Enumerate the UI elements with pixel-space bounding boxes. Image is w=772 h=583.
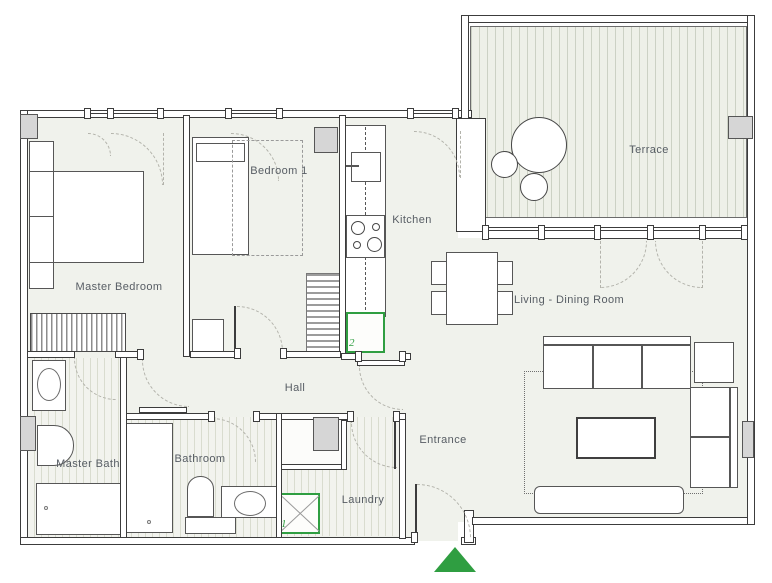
- room-label-terrace: Terrace: [629, 144, 668, 156]
- sofa-cushion-divider: [641, 345, 643, 388]
- window-post: [594, 225, 601, 240]
- burner-icon: [367, 237, 382, 252]
- window-leaf: [163, 133, 164, 185]
- shower-tray: [126, 423, 173, 533]
- sofa-cushion-divider: [691, 436, 729, 438]
- planter-icon: [520, 173, 548, 201]
- wall: [120, 357, 127, 538]
- sofa-two-seat: [690, 387, 738, 488]
- door-leaf: [394, 422, 396, 469]
- sofa-cushion-divider: [592, 345, 594, 388]
- nightstand: [29, 262, 54, 289]
- window-post: [157, 108, 164, 119]
- window-post: [482, 225, 489, 240]
- room-label-master-bath: Master Bath: [56, 458, 120, 470]
- room-label-bathroom: Bathroom: [175, 453, 226, 465]
- wall: [461, 15, 469, 119]
- room-label-kitchen: Kitchen: [392, 214, 432, 226]
- terrace-door-leaf: [600, 241, 601, 288]
- floor-plan: Master Bedroom Bedroom 1 Kitchen Terrace…: [0, 0, 772, 583]
- planter-icon: [511, 117, 567, 173]
- washbasin-icon: [37, 368, 61, 401]
- sliding-door-leaf: [357, 360, 405, 366]
- window-post: [276, 108, 283, 119]
- door-leaf: [460, 131, 461, 178]
- drain-icon: [147, 520, 151, 524]
- dining-table: [446, 252, 498, 325]
- wardrobe: [30, 313, 126, 352]
- nightstand: [29, 141, 54, 172]
- wall: [190, 351, 238, 358]
- column: [20, 114, 38, 139]
- drain-icon: [44, 506, 48, 510]
- wall: [339, 115, 346, 357]
- window-post: [538, 225, 545, 240]
- wall: [281, 464, 342, 470]
- bedside-unit: [29, 216, 54, 263]
- side-table: [694, 342, 734, 383]
- tv-cabinet: [534, 486, 684, 514]
- wall: [341, 420, 347, 470]
- door-jamb: [280, 348, 287, 359]
- room-label-hall: Hall: [285, 382, 306, 394]
- wall: [183, 115, 190, 357]
- dining-chair: [431, 291, 447, 315]
- window-post: [647, 225, 654, 240]
- wall: [20, 110, 28, 545]
- appliance-2-marker: 2: [349, 337, 355, 349]
- door-jamb: [355, 351, 362, 362]
- door-jamb: [411, 532, 418, 543]
- bedside-unit: [29, 171, 54, 217]
- coffee-table: [576, 417, 656, 459]
- burner-icon: [353, 241, 361, 249]
- front-door-leaf: [415, 484, 417, 538]
- burner-icon: [372, 223, 380, 231]
- hall-closet-box: [313, 417, 339, 451]
- shower-tray: [36, 483, 122, 535]
- wall: [461, 15, 755, 23]
- kitchen-sink: [351, 152, 381, 182]
- window-post: [107, 108, 114, 119]
- door-jamb: [208, 411, 215, 422]
- dining-chair: [431, 261, 447, 285]
- window-post: [452, 108, 459, 119]
- window-post: [699, 225, 706, 240]
- room-label-living-dining: Living - Dining Room: [514, 294, 624, 306]
- room-label-laundry: Laundry: [342, 494, 385, 506]
- door-jamb: [253, 411, 260, 422]
- room-label-bedroom1: Bedroom 1: [250, 165, 307, 177]
- door-jamb: [137, 349, 144, 360]
- washbasin-icon: [234, 491, 266, 516]
- wall: [399, 413, 406, 539]
- window: [411, 110, 457, 118]
- sofa-back-line: [729, 388, 731, 487]
- window-post: [84, 108, 91, 119]
- column: [314, 127, 338, 153]
- wall: [472, 517, 755, 525]
- window-post: [225, 108, 232, 119]
- window-post: [407, 108, 414, 119]
- window: [88, 110, 162, 118]
- window: [229, 110, 281, 118]
- door-jamb: [393, 411, 400, 422]
- door-jamb: [234, 348, 241, 359]
- burner-icon: [351, 221, 365, 235]
- wall: [27, 351, 75, 358]
- door-jamb: [347, 411, 354, 422]
- wall: [122, 413, 213, 420]
- dining-chair: [497, 261, 513, 285]
- wall: [283, 351, 341, 358]
- wall: [20, 537, 415, 545]
- appliance-1-marker: 1: [281, 518, 287, 530]
- wall: [161, 110, 232, 118]
- stove: [346, 215, 385, 258]
- column: [728, 116, 753, 139]
- terrace-deck: [470, 26, 747, 218]
- toilet-icon: [187, 476, 214, 517]
- terrace-glazing: [486, 227, 748, 239]
- wall: [279, 110, 413, 118]
- shelf-unit: [306, 273, 341, 353]
- window-post: [741, 225, 748, 240]
- bath-mat: [185, 517, 236, 534]
- door-leaf: [234, 306, 236, 352]
- room-label-entrance: Entrance: [419, 434, 466, 446]
- desk: [192, 319, 224, 352]
- sliding-door-leaf: [139, 407, 187, 413]
- faucet-icon: [345, 165, 359, 167]
- sofa-back-line: [544, 344, 690, 346]
- planter-icon: [491, 151, 518, 178]
- entrance-arrow-icon: [434, 547, 476, 572]
- dining-chair: [497, 291, 513, 315]
- room-label-master-bedroom: Master Bedroom: [76, 281, 163, 293]
- column: [20, 416, 36, 451]
- terrace-door-leaf: [702, 241, 703, 288]
- column: [742, 421, 754, 458]
- door-jamb: [399, 351, 406, 362]
